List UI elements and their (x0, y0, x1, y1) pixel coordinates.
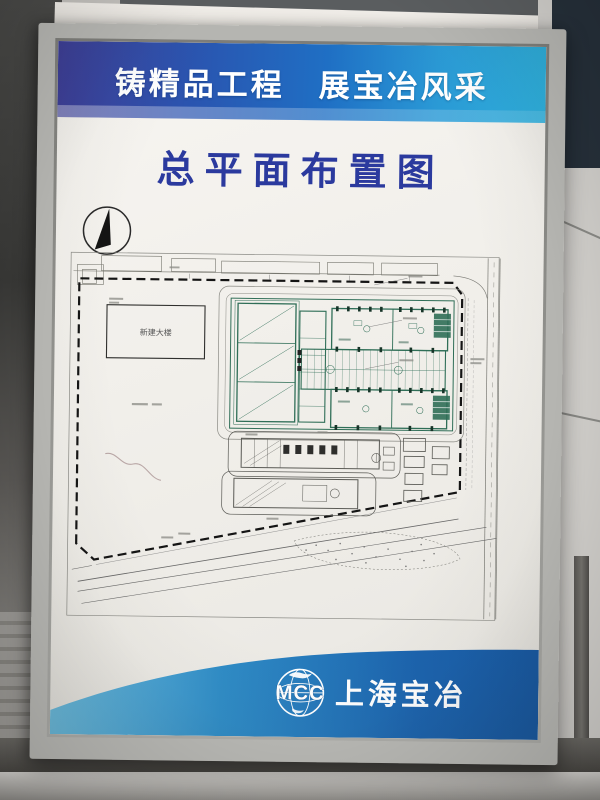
company-name: 上海宝冶 (335, 677, 467, 713)
drawing-border (67, 252, 499, 620)
notice-board: 铸精品工程 展宝冶风采 总平面布置图 (30, 23, 567, 765)
poster: 铸精品工程 展宝冶风采 总平面布置图 (50, 41, 546, 740)
mcc-logo-text: MCC (275, 682, 324, 705)
steel-frame-inner: 铸精品工程 展宝冶风采 总平面布置图 (47, 38, 550, 743)
main-building-complex (230, 298, 455, 431)
stair-cores (433, 314, 451, 420)
lower-buildings (222, 431, 450, 517)
new-building-label: 新建大楼 (140, 327, 172, 337)
site-plan-drawing: 新建大楼 (65, 247, 507, 632)
slogan-banner: 铸精品工程 展宝冶风采 (57, 41, 546, 123)
north-side-structures (73, 255, 439, 288)
handwritten-mark (105, 453, 161, 480)
steel-frame: 铸精品工程 展宝冶风采 总平面布置图 (30, 23, 567, 765)
equipment-blocks (283, 445, 337, 455)
column-ticks (297, 306, 446, 431)
footer-logo-group: MCC 上海宝冶 (50, 624, 539, 740)
right-road (449, 258, 500, 620)
background-curb (0, 772, 600, 800)
slogan-text: 铸精品工程 展宝冶风采 (115, 57, 490, 107)
page-title: 总平面布置图 (56, 137, 545, 198)
new-building-block: 新建大楼 (106, 305, 205, 359)
green-area (294, 531, 460, 570)
